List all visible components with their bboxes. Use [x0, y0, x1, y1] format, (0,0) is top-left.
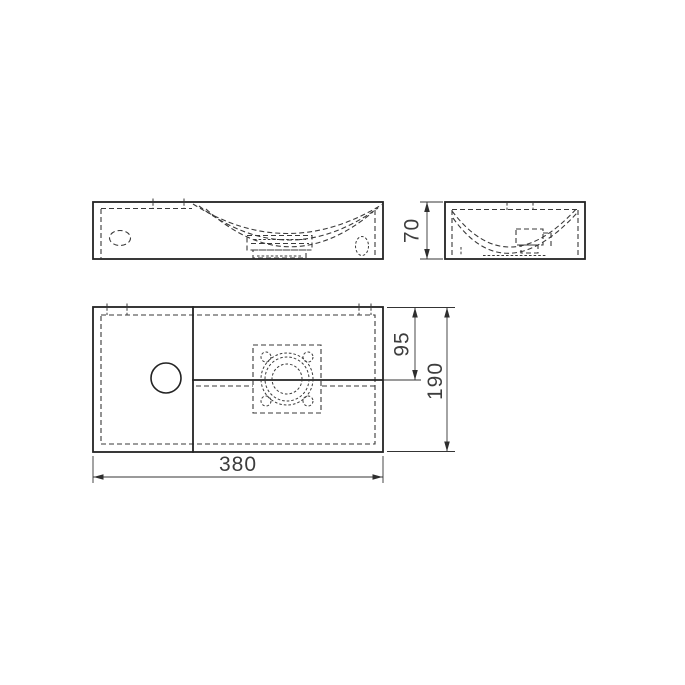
plan-mounting-ticks: [107, 304, 371, 316]
side-elevation-view: [445, 202, 585, 259]
width-arrow-left: [94, 474, 104, 480]
side-outline: [445, 202, 585, 259]
width-arrow-right: [373, 474, 383, 480]
side-drain-step: [543, 233, 551, 246]
height-arrow-down: [424, 249, 430, 259]
dimension-width: 380: [93, 453, 383, 483]
technical-drawing: 70: [0, 0, 685, 685]
front-mounting-ticks: [153, 199, 184, 210]
front-overflow-hidden: [356, 237, 369, 256]
front-outline: [93, 202, 383, 259]
plan-drain-clip-br: [303, 396, 313, 406]
plan-drain-clip-bl: [261, 396, 271, 406]
side-drain-body: [516, 229, 543, 245]
depth-arrow-up: [444, 308, 450, 318]
front-bowl-curve-inner: [206, 209, 373, 247]
plan-drain-clip-tr: [303, 352, 313, 362]
side-bowl-curve-outer: [452, 207, 578, 247]
depth-arrow-down: [444, 442, 450, 452]
offset-arrow-down: [412, 370, 418, 380]
plan-drain-clip-tl: [261, 352, 271, 362]
plan-drain-plate-hidden: [253, 345, 321, 413]
front-drain-body: [247, 236, 312, 251]
front-bowl-curve-outer: [193, 204, 383, 234]
plan-drain-circle-inner: [272, 364, 302, 394]
plan-view: [93, 304, 383, 453]
height-dimension-label: 70: [401, 218, 424, 243]
dimension-depth: 190: [387, 307, 455, 452]
width-dimension-label: 380: [219, 453, 257, 476]
drawing-canvas: 70: [0, 0, 685, 685]
offset-arrow-up: [412, 308, 418, 318]
depth-dimension-label: 190: [424, 362, 447, 400]
front-tap-hole-hidden: [110, 231, 131, 246]
front-elevation-view: [93, 199, 383, 260]
front-drain-tail: [253, 250, 306, 258]
offset-dimension-label: 95: [391, 331, 414, 356]
dimension-height: 70: [401, 202, 444, 259]
height-arrow-up: [424, 202, 430, 212]
plan-tap-hole: [151, 363, 181, 393]
front-bowl-curve-mid: [199, 206, 378, 240]
